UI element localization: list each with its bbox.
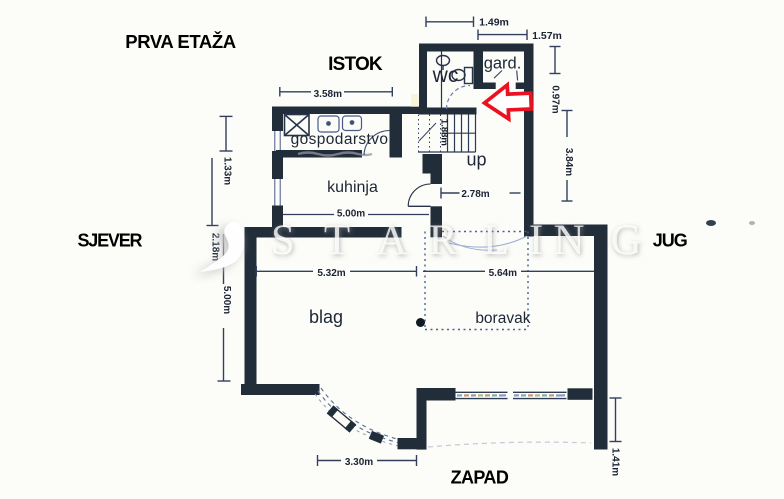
svg-text:T: T — [324, 217, 350, 264]
svg-text:1.33m: 1.33m — [222, 157, 233, 185]
svg-text:wc: wc — [432, 64, 459, 87]
svg-text:JUG: JUG — [653, 231, 687, 251]
svg-text:ISTOK: ISTOK — [328, 54, 383, 75]
svg-text:1.41m: 1.41m — [610, 448, 621, 476]
svg-text:gard.: gard. — [484, 55, 522, 73]
svg-text:PRVA ETAŽA: PRVA ETAŽA — [125, 31, 235, 52]
svg-text:blag: blag — [309, 307, 343, 327]
svg-text:1.57m: 1.57m — [532, 30, 562, 42]
svg-text:I: I — [529, 217, 543, 264]
svg-text:3.58m: 3.58m — [314, 89, 342, 100]
svg-text:5.00m: 5.00m — [221, 286, 232, 314]
svg-text:A: A — [376, 217, 407, 264]
svg-text:1.88m: 1.88m — [439, 119, 450, 146]
svg-text:L: L — [483, 217, 509, 264]
svg-text:boravak: boravak — [475, 310, 530, 327]
svg-text:S: S — [271, 217, 295, 264]
svg-text:ZAPAD: ZAPAD — [451, 468, 509, 488]
svg-text:G: G — [610, 217, 641, 264]
svg-text:SJEVER: SJEVER — [77, 231, 142, 251]
svg-text:2.78m: 2.78m — [461, 189, 489, 200]
svg-text:1.49m: 1.49m — [479, 17, 509, 29]
svg-text:5.32m: 5.32m — [317, 268, 345, 279]
svg-text:gospodarstvo: gospodarstvo — [291, 131, 389, 148]
svg-text:5.64m: 5.64m — [489, 268, 517, 279]
svg-text:up: up — [466, 150, 486, 170]
svg-text:3.30m: 3.30m — [345, 457, 373, 468]
svg-text:R: R — [429, 217, 458, 264]
svg-text:0.97m: 0.97m — [550, 85, 561, 113]
svg-text:N: N — [553, 217, 584, 264]
svg-text:kuhinja: kuhinja — [327, 179, 378, 196]
svg-text:3.84m: 3.84m — [563, 148, 574, 176]
